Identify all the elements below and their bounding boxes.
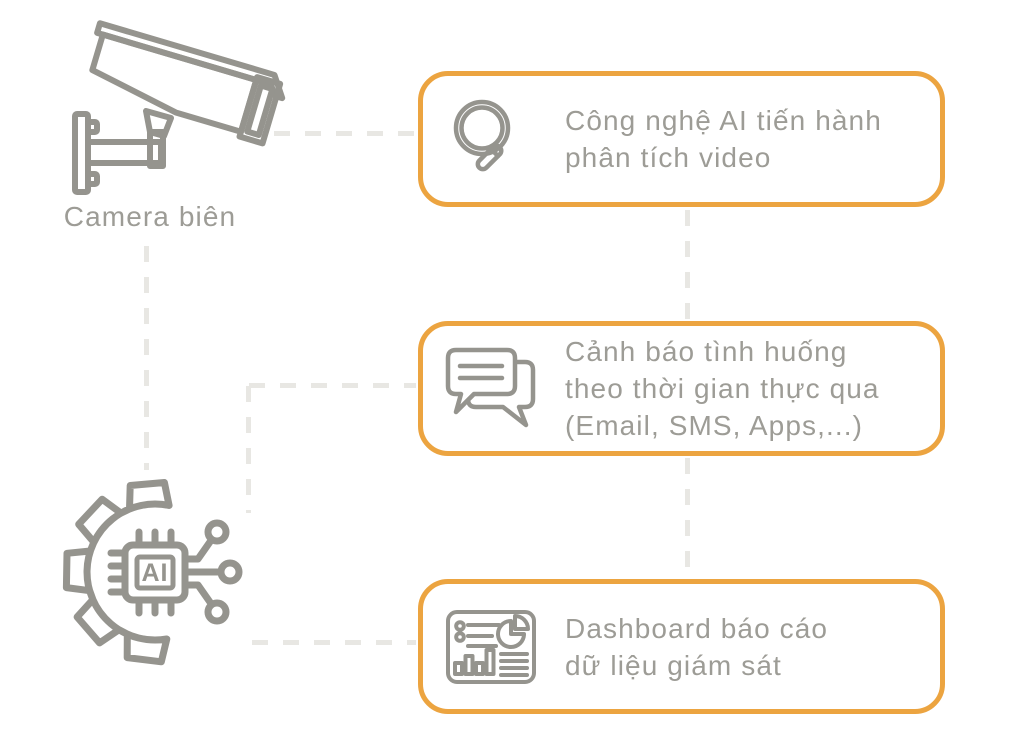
- search-icon-wrap: [441, 97, 541, 181]
- cctv-camera-icon: [58, 14, 298, 219]
- text-line: Dashboard báo cáo: [565, 610, 828, 647]
- camera-label: Camera biên: [40, 201, 260, 233]
- step-box-alert-text: Cảnh báo tình huống theo thời gian thực …: [565, 333, 880, 444]
- step-box-dashboard-text: Dashboard báo cáo dữ liệu giám sát: [565, 610, 828, 684]
- diagram-canvas: Camera biên AI: [0, 0, 1024, 749]
- chat-icon-wrap: [441, 345, 541, 433]
- step-box-dashboard: Dashboard báo cáo dữ liệu giám sát: [418, 579, 945, 714]
- step-box-alert: Cảnh báo tình huống theo thời gian thực …: [418, 321, 945, 456]
- chat-icon: [443, 345, 539, 433]
- connector-ai-to-box3: [252, 640, 416, 645]
- ai-chip-gear-icon: AI: [55, 467, 255, 677]
- text-line: dữ liệu giám sát: [565, 647, 828, 684]
- connector-box2-to-box3: [685, 458, 690, 577]
- text-line: Cảnh báo tình huống: [565, 333, 880, 370]
- text-line: phân tích video: [565, 139, 882, 176]
- dashboard-icon: [445, 607, 537, 687]
- step-box-analyze-text: Công nghệ AI tiến hành phân tích video: [565, 102, 882, 176]
- text-line: theo thời gian thực qua: [565, 370, 880, 407]
- connector-box1-to-box2: [685, 210, 690, 320]
- ai-chip-label: AI: [142, 559, 169, 587]
- text-line: (Email, SMS, Apps,...): [565, 407, 880, 444]
- dashboard-icon-wrap: [441, 607, 541, 687]
- step-box-analyze: Công nghệ AI tiến hành phân tích video: [418, 71, 945, 207]
- connector-camera-to-ai: [144, 246, 149, 470]
- connector-ai-to-box2-horizontal: [249, 383, 416, 388]
- search-icon: [449, 97, 533, 181]
- text-line: Công nghệ AI tiến hành: [565, 102, 882, 139]
